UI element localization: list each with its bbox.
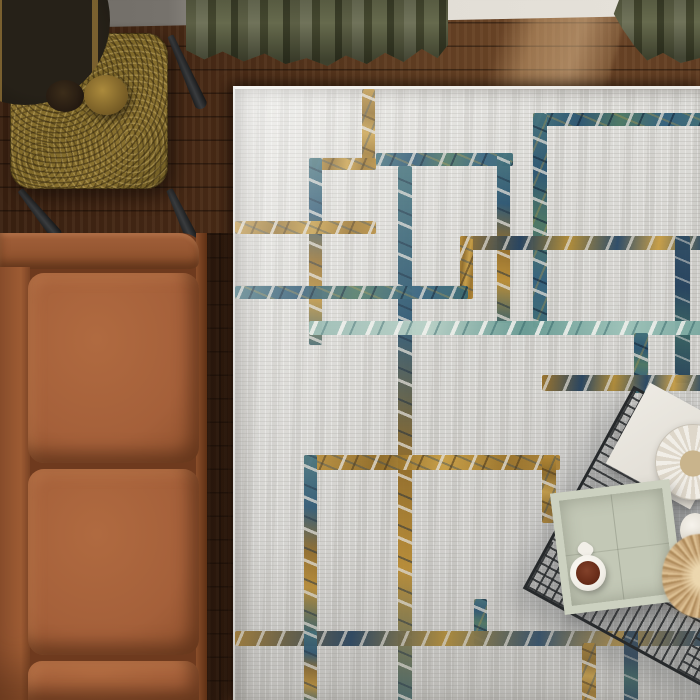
rug-line xyxy=(376,153,513,166)
rug-line xyxy=(533,113,700,126)
rug-line xyxy=(304,455,560,470)
rug-line xyxy=(235,286,468,299)
lamp-stem xyxy=(46,80,84,112)
sofa xyxy=(0,233,207,700)
room-scene xyxy=(0,0,700,700)
coffee-surface xyxy=(576,561,600,585)
tray-seam xyxy=(611,494,625,599)
sofa-cushion xyxy=(28,273,199,463)
rug-line xyxy=(304,631,317,700)
sofa-cushion xyxy=(28,661,199,700)
sofa-backrest xyxy=(0,267,30,700)
rug-line xyxy=(398,166,412,700)
rug-line xyxy=(582,643,596,700)
rug-line xyxy=(235,221,376,234)
lamp-base xyxy=(84,75,128,115)
tray xyxy=(550,479,684,615)
rug-line xyxy=(309,158,322,345)
rug-line xyxy=(542,375,700,391)
rug-line xyxy=(533,113,547,328)
sofa-cushion xyxy=(28,469,199,655)
sofa-armrest xyxy=(0,233,199,269)
rug-line xyxy=(460,236,700,250)
rug-line xyxy=(675,236,690,383)
rug-line xyxy=(362,89,375,169)
rug-line xyxy=(304,455,317,631)
